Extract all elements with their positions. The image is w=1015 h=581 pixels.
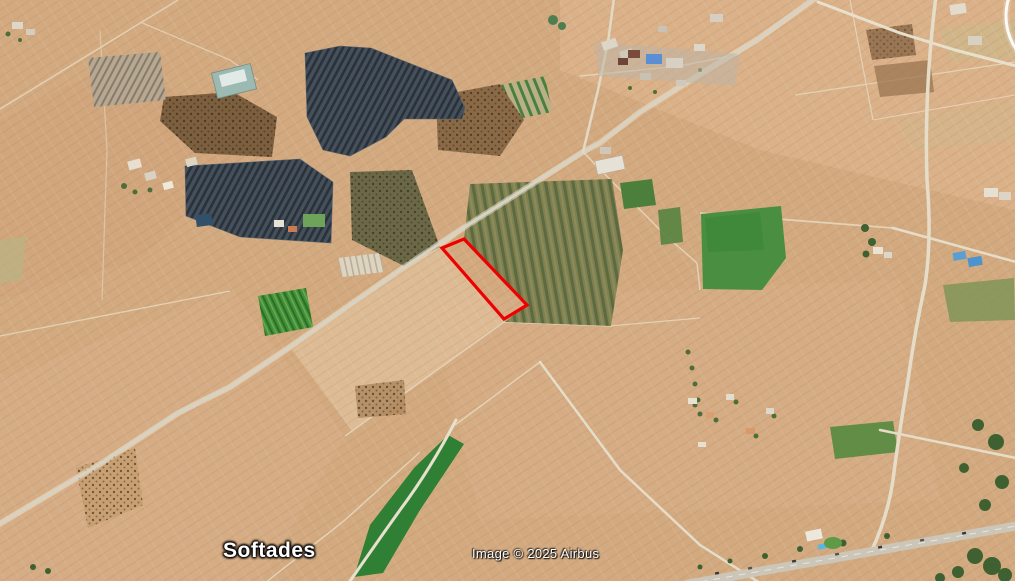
aerial-imagery (0, 0, 1015, 581)
place-label-softades: Softades (223, 539, 316, 563)
blue-roof-building (646, 54, 662, 64)
solar-panel-rows-small (88, 52, 166, 107)
imagery-attribution: Image © 2025 Airbus (472, 546, 599, 561)
satellite-map[interactable]: Softades Image © 2025 Airbus (0, 0, 1015, 581)
farm-pond (195, 213, 213, 227)
